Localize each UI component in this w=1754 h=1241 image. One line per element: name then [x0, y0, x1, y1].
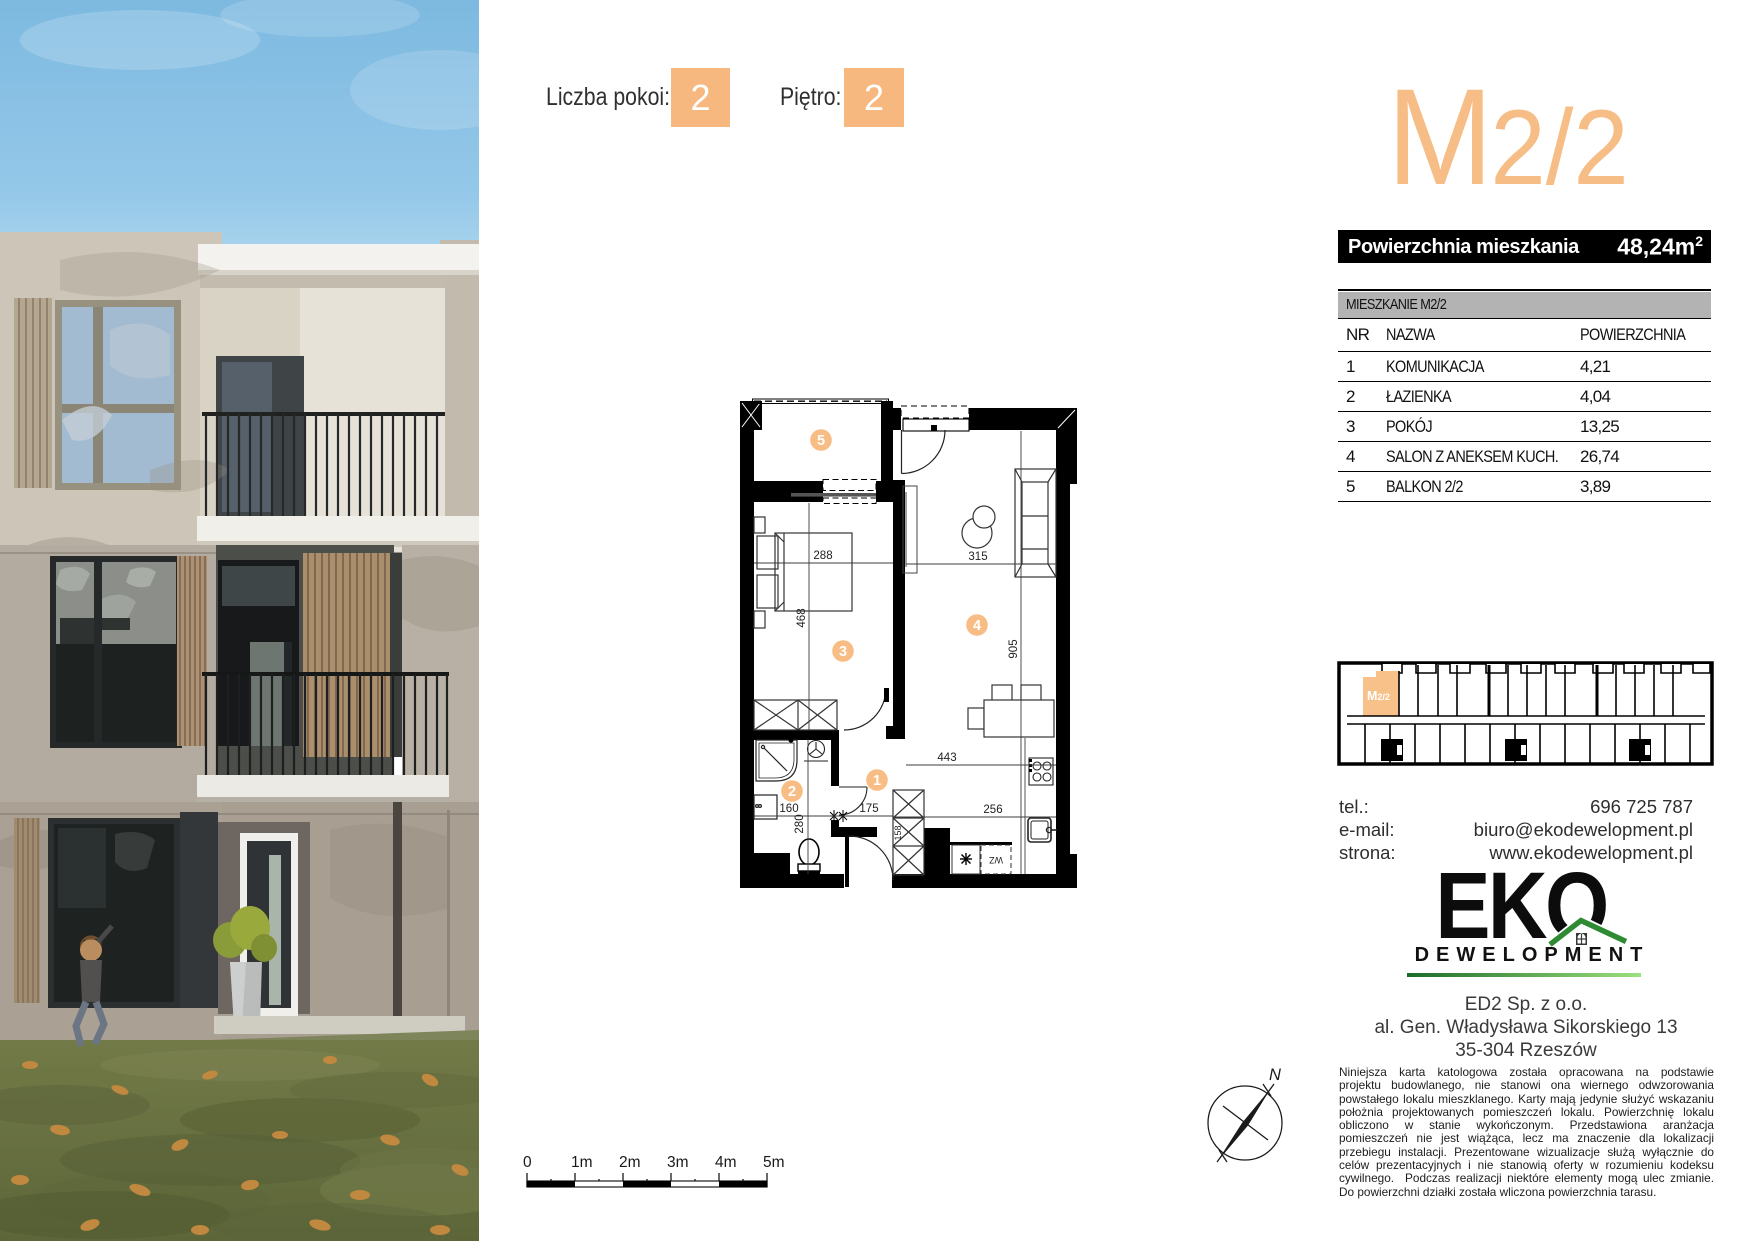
svg-text:2m: 2m [619, 1154, 641, 1171]
svg-text:175: 175 [859, 803, 878, 815]
svg-text:160: 160 [779, 803, 798, 815]
svg-text:443: 443 [937, 752, 956, 764]
svg-text:WZ: WZ [989, 855, 1003, 865]
svg-text:5: 5 [817, 433, 825, 449]
svg-text:158: 158 [893, 825, 903, 840]
svg-text:4: 4 [973, 618, 981, 634]
svg-text:280: 280 [794, 814, 806, 833]
svg-text:M2/2: M2/2 [1367, 689, 1390, 703]
svg-text:905: 905 [1008, 639, 1020, 658]
svg-text:N: N [1269, 1066, 1281, 1084]
svg-text:4m: 4m [715, 1154, 737, 1171]
svg-text:0: 0 [523, 1154, 532, 1171]
svg-text:3m: 3m [667, 1154, 689, 1171]
svg-text:288: 288 [813, 550, 832, 562]
svg-text:468: 468 [796, 608, 808, 627]
svg-text:3: 3 [839, 644, 847, 660]
svg-text:1m: 1m [571, 1154, 593, 1171]
svg-text:256: 256 [983, 804, 1002, 816]
svg-text:2: 2 [788, 784, 796, 800]
svg-text:315: 315 [968, 551, 987, 563]
svg-text:1: 1 [873, 773, 881, 789]
svg-text:5m: 5m [763, 1154, 785, 1171]
